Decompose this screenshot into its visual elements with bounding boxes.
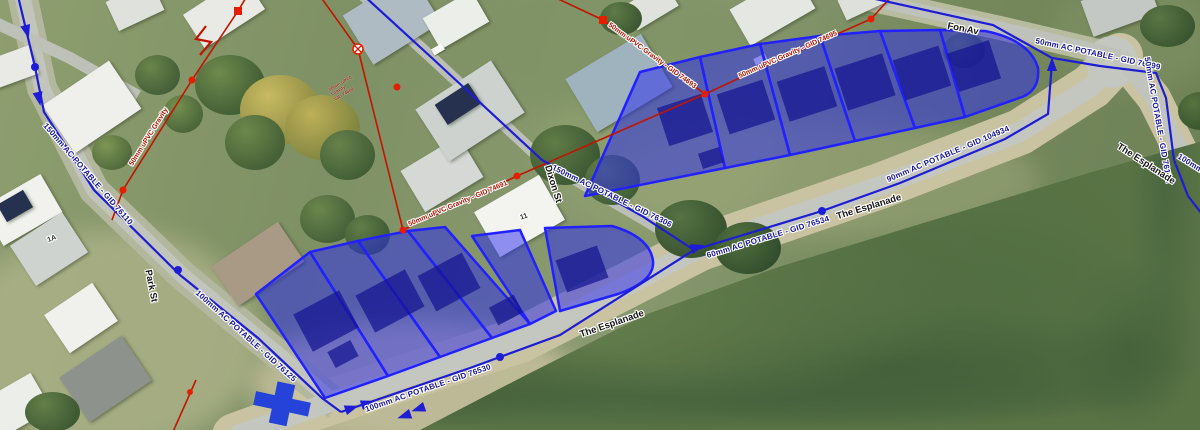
sewer-main-line[interactable] — [320, 0, 403, 230]
node-marker-icon[interactable] — [187, 389, 193, 395]
sewer-main-line[interactable] — [112, 0, 247, 220]
gis-map-canvas[interactable]: 150mm AC POTABLE - GID 76110 100mm AC PO… — [0, 0, 1200, 430]
node-marker-icon[interactable] — [189, 77, 196, 84]
utility-overlay — [0, 0, 1200, 430]
node-marker-icon[interactable] — [400, 227, 407, 234]
node-marker-icon[interactable] — [394, 84, 401, 91]
node-marker-icon[interactable] — [174, 266, 182, 274]
node-marker-icon[interactable] — [599, 16, 607, 24]
sewer-zigzag-icon — [196, 26, 211, 55]
node-marker-icon[interactable] — [120, 187, 127, 194]
flow-arrow-icon — [396, 409, 412, 423]
node-marker-icon[interactable] — [702, 91, 709, 98]
sewer-main-line[interactable] — [172, 380, 196, 430]
node-marker-icon[interactable] — [496, 353, 504, 361]
node-marker-icon[interactable] — [868, 16, 875, 23]
node-marker-icon[interactable] — [234, 7, 242, 15]
cross-marker-icon[interactable] — [250, 377, 314, 430]
flow-arrow-icon — [410, 402, 426, 416]
node-marker-icon[interactable] — [514, 173, 521, 180]
flow-arrow-icon — [344, 401, 360, 415]
node-marker-icon[interactable] — [31, 63, 39, 71]
